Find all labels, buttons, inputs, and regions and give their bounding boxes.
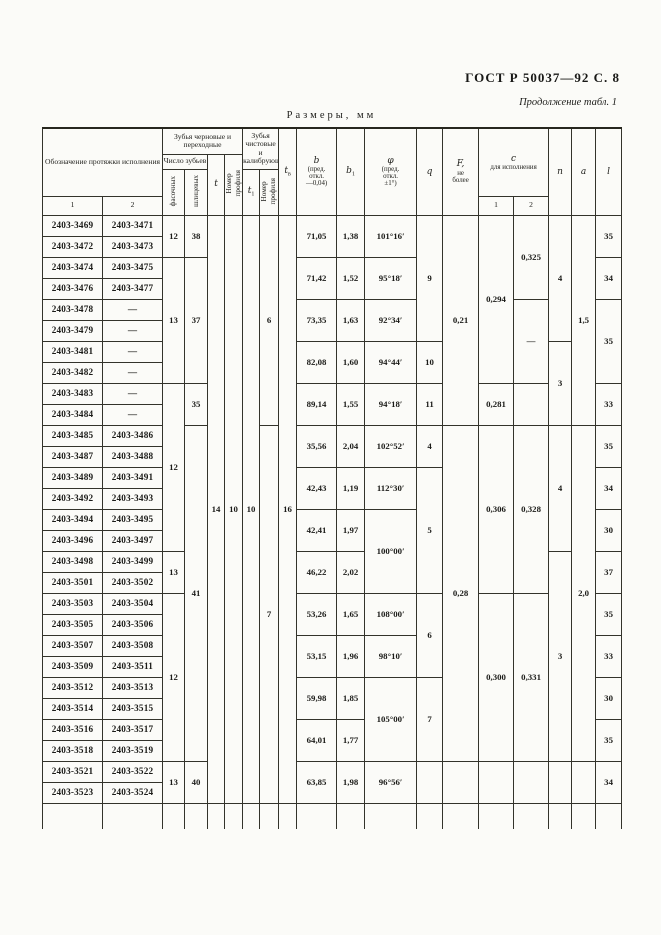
data-cell xyxy=(549,761,572,803)
data-cell: 12 xyxy=(163,593,185,761)
table-header: Обозначение протяжки исполнения Зубья че… xyxy=(43,128,622,215)
designation-cell: 2403-3488 xyxy=(103,446,163,467)
data-cell: 1,52 xyxy=(337,257,365,299)
data-cell: 1,85 xyxy=(337,677,365,719)
data-cell: 40 xyxy=(185,761,208,803)
data-cell: 10 xyxy=(417,341,443,383)
designation-cell: 2403-3489 xyxy=(43,467,103,488)
dimensions-table: Обозначение протяжки исполнения Зубья че… xyxy=(42,127,622,829)
data-cell: 1,77 xyxy=(337,719,365,761)
designation-cell: 2403-3509 xyxy=(43,656,103,677)
header-a-column: a xyxy=(572,128,596,215)
designation-cell: 2403-3494 xyxy=(43,509,103,530)
data-cell: 1,38 xyxy=(337,215,365,257)
designation-1-label: 1 xyxy=(71,200,75,209)
data-cell: 0,21 xyxy=(443,215,479,425)
header-designation-1: 1 xyxy=(43,196,103,215)
designation-cell: 2403-3472 xyxy=(43,236,103,257)
data-cell: 1,55 xyxy=(337,383,365,425)
phi-symbol: φ xyxy=(387,156,393,166)
data-cell: 13 xyxy=(163,551,185,593)
data-cell: 35 xyxy=(596,215,622,257)
data-cell: 3 xyxy=(549,551,572,761)
data-cell: 42,43 xyxy=(297,467,337,509)
data-cell: 35,56 xyxy=(297,425,337,467)
header-designation: Обозначение протяжки исполнения xyxy=(43,128,163,196)
designation-cell: 2403-3503 xyxy=(43,593,103,614)
data-cell: 82,08 xyxy=(297,341,337,383)
data-cell: 42,41 xyxy=(297,509,337,551)
designation-cell: 2403-3481 xyxy=(43,341,103,362)
spline-label: шлицевых xyxy=(192,175,201,207)
header-rough-teeth-group: Зубья черновые и переходные xyxy=(163,128,243,154)
data-cell: 5 xyxy=(417,467,443,593)
data-cell xyxy=(514,761,549,803)
chamfer-label: фасочных xyxy=(169,176,178,206)
designation-cell: 2403-3475 xyxy=(103,257,163,278)
data-cell: 4 xyxy=(549,425,572,551)
data-cell: 7 xyxy=(417,677,443,761)
designation-cell: 2403-3497 xyxy=(103,530,163,551)
header-t-column: t xyxy=(208,154,225,215)
tail-cell xyxy=(337,803,365,829)
data-cell: 4 xyxy=(417,425,443,467)
header-f-column: F,не более xyxy=(443,128,479,215)
profile-no-finish-label: Номер профиля xyxy=(260,178,278,204)
data-cell: 0,28 xyxy=(443,425,479,761)
designation-cell: 2403-3508 xyxy=(103,635,163,656)
designation-cell: 2403-3496 xyxy=(43,530,103,551)
table-body: 2403-34692403-3471123814101061671,051,38… xyxy=(43,215,622,829)
designation-cell: 2403-3512 xyxy=(43,677,103,698)
header-finish-group-label: Зубья чистовые и калибрующие xyxy=(243,131,279,166)
tail-cell xyxy=(297,803,337,829)
header-q-column: q xyxy=(417,128,443,215)
header-b-column: b(пред. откл. —0,04) xyxy=(297,128,337,215)
data-cell: 14 xyxy=(208,215,225,803)
header-teeth-count: Число зубьев xyxy=(163,154,208,169)
tail-cell xyxy=(243,803,260,829)
data-cell: 0,281 xyxy=(479,383,514,425)
data-cell: 94°44′ xyxy=(365,341,417,383)
designation-cell: 2403-3482 xyxy=(43,362,103,383)
data-cell: 10 xyxy=(243,215,260,803)
data-cell xyxy=(572,761,596,803)
designation-cell: 2403-3478 xyxy=(43,299,103,320)
data-cell: 37 xyxy=(185,257,208,383)
table-row: 2403-3483—123589,141,5594°18′110,28133 xyxy=(43,383,622,404)
designation-cell: — xyxy=(103,362,163,383)
designation-cell: — xyxy=(103,404,163,425)
data-cell: 35 xyxy=(596,719,622,761)
data-cell: 2,04 xyxy=(337,425,365,467)
data-cell: 4 xyxy=(549,215,572,341)
header-n-column: n xyxy=(549,128,572,215)
tail-cell xyxy=(43,803,103,829)
l-symbol: l xyxy=(607,167,610,177)
data-cell: 71,05 xyxy=(297,215,337,257)
data-cell: 34 xyxy=(596,257,622,299)
designation-cell: 2403-3506 xyxy=(103,614,163,635)
data-cell: 13 xyxy=(163,257,185,383)
tail-cell xyxy=(163,803,185,829)
designation-cell: 2403-3498 xyxy=(43,551,103,572)
data-cell: 1,98 xyxy=(337,761,365,803)
b-symbol: b xyxy=(314,156,320,166)
designation-cell: 2403-3483 xyxy=(43,383,103,404)
designation-cell: 2403-3505 xyxy=(43,614,103,635)
data-cell: 1,60 xyxy=(337,341,365,383)
designation-cell: 2403-3476 xyxy=(43,278,103,299)
designation-cell: 2403-3492 xyxy=(43,488,103,509)
tail-cell xyxy=(208,803,225,829)
data-cell: 12 xyxy=(163,215,185,257)
dimensions-units-label: Размеры, мм xyxy=(42,110,621,121)
data-cell: 7 xyxy=(260,425,279,803)
data-cell: 33 xyxy=(596,635,622,677)
designation-cell: 2403-3516 xyxy=(43,719,103,740)
table-continuation-label: Продолжение табл. 1 xyxy=(519,97,617,108)
tail-cell xyxy=(549,803,572,829)
designation-cell: 2403-3522 xyxy=(103,761,163,782)
tail-cell xyxy=(365,803,417,829)
data-cell: 96°56′ xyxy=(365,761,417,803)
designation-2-label: 2 xyxy=(131,200,135,209)
table-row: 2403-35212403-3522134063,851,9896°56′34 xyxy=(43,761,622,782)
designation-cell: 2403-3495 xyxy=(103,509,163,530)
designation-cell: 2403-3523 xyxy=(43,782,103,803)
designation-cell: 2403-3485 xyxy=(43,425,103,446)
designation-cell: 2403-3469 xyxy=(43,215,103,236)
data-cell: 46,22 xyxy=(297,551,337,593)
data-cell: 0,331 xyxy=(514,593,549,761)
data-cell: 1,63 xyxy=(337,299,365,341)
b1-subscript: 1 xyxy=(352,171,355,177)
data-cell: 0,328 xyxy=(514,425,549,593)
designation-cell: 2403-3504 xyxy=(103,593,163,614)
data-cell: — xyxy=(514,299,549,383)
header-c-group: сдля исполнения xyxy=(479,128,549,196)
tail-cell xyxy=(572,803,596,829)
data-cell: 1,96 xyxy=(337,635,365,677)
designation-cell: 2403-3474 xyxy=(43,257,103,278)
data-cell xyxy=(479,761,514,803)
designation-cell: 2403-3499 xyxy=(103,551,163,572)
designation-cell: 2403-3484 xyxy=(43,404,103,425)
designation-cell: 2403-3493 xyxy=(103,488,163,509)
data-cell: 30 xyxy=(596,677,622,719)
designation-cell: 2403-3511 xyxy=(103,656,163,677)
tail-cell xyxy=(225,803,243,829)
table-row: 2403-35032403-35041253,261,65108°00′60,3… xyxy=(43,593,622,614)
tail-cell xyxy=(185,803,208,829)
designation-cell: 2403-3491 xyxy=(103,467,163,488)
designation-cell: 2403-3486 xyxy=(103,425,163,446)
header-finish-teeth-group: Зубья чистовые и калибрующие xyxy=(243,128,279,169)
header-c-1: 1 xyxy=(479,196,514,215)
data-cell: 35 xyxy=(596,593,622,635)
data-cell: 34 xyxy=(596,467,622,509)
data-cell: 0,300 xyxy=(479,593,514,761)
tail-cell xyxy=(103,803,163,829)
data-cell: 95°18′ xyxy=(365,257,417,299)
data-cell: 3 xyxy=(549,341,572,425)
header-chamfer-teeth: фасочных xyxy=(163,169,185,215)
header-designation-2: 2 xyxy=(103,196,163,215)
data-cell: 112°30′ xyxy=(365,467,417,509)
data-cell: 10 xyxy=(225,215,243,803)
data-cell: 0,294 xyxy=(479,215,514,383)
data-cell: 59,98 xyxy=(297,677,337,719)
data-cell: 13 xyxy=(163,761,185,803)
designation-cell: — xyxy=(103,383,163,404)
tail-cell xyxy=(596,803,622,829)
designation-cell: 2403-3517 xyxy=(103,719,163,740)
designation-cell: 2403-3515 xyxy=(103,698,163,719)
data-cell: 6 xyxy=(260,215,279,425)
data-cell: 12 xyxy=(163,383,185,551)
designation-cell: 2403-3514 xyxy=(43,698,103,719)
data-cell: 105°00′ xyxy=(365,677,417,761)
data-cell xyxy=(514,383,549,425)
data-cell xyxy=(443,761,479,803)
data-cell: 35 xyxy=(596,299,622,383)
data-cell: 71,42 xyxy=(297,257,337,299)
data-cell: 53,15 xyxy=(297,635,337,677)
a-symbol: a xyxy=(581,167,586,177)
tv-subscript: в xyxy=(288,171,291,177)
data-cell: 33 xyxy=(596,383,622,425)
table-row: 2403-3478—73,351,6392°34′—35 xyxy=(43,299,622,320)
data-cell: 1,97 xyxy=(337,509,365,551)
t-symbol: t xyxy=(214,179,218,189)
data-cell: 2,02 xyxy=(337,551,365,593)
data-cell: 98°10′ xyxy=(365,635,417,677)
header-spline-teeth: шлицевых xyxy=(185,169,208,215)
designation-cell: 2403-3501 xyxy=(43,572,103,593)
data-cell: 100°00′ xyxy=(365,509,417,593)
designation-cell: 2403-3507 xyxy=(43,635,103,656)
data-cell: 11 xyxy=(417,383,443,425)
designation-cell: 2403-3471 xyxy=(103,215,163,236)
scanned-document-page: ГОСТ Р 50037—92 С. 8 Продолжение табл. 1… xyxy=(0,0,661,935)
n-symbol: n xyxy=(557,167,563,177)
data-cell: 101°16′ xyxy=(365,215,417,257)
tail-cell xyxy=(260,803,279,829)
data-cell: 73,35 xyxy=(297,299,337,341)
designation-cell: 2403-3502 xyxy=(103,572,163,593)
table-row: 2403-34852403-348641735,562,04102°52′40,… xyxy=(43,425,622,446)
data-cell: 53,26 xyxy=(297,593,337,635)
header-tv-column: tв xyxy=(279,128,297,215)
data-cell: 16 xyxy=(279,215,297,803)
data-cell xyxy=(417,761,443,803)
designation-cell: 2403-3479 xyxy=(43,320,103,341)
data-cell: 92°34′ xyxy=(365,299,417,341)
header-phi-column: φ(пред. откл. ±1°) xyxy=(365,128,417,215)
data-cell: 34 xyxy=(596,761,622,803)
c-symbol: с xyxy=(511,154,516,164)
c-1-label: 1 xyxy=(494,200,498,209)
t1-subscript: 1 xyxy=(251,191,254,197)
header-designation-label: Обозначение протяжки исполнения xyxy=(45,157,160,166)
tail-cell xyxy=(417,803,443,829)
data-cell: 64,01 xyxy=(297,719,337,761)
designation-cell: 2403-3513 xyxy=(103,677,163,698)
tail-cell xyxy=(443,803,479,829)
data-cell: 35 xyxy=(185,383,208,425)
header-rough-group-label: Зубья черновые и переходные xyxy=(174,132,231,150)
designation-cell: — xyxy=(103,320,163,341)
gost-standard-header: ГОСТ Р 50037—92 С. 8 xyxy=(465,70,620,86)
header-l-column: l xyxy=(596,128,622,215)
data-cell: 94°18′ xyxy=(365,383,417,425)
f-symbol: F, xyxy=(457,159,465,169)
phi-tolerance-note: (пред. откл. ±1°) xyxy=(365,166,416,188)
header-c-2: 2 xyxy=(514,196,549,215)
table-row: 2403-34692403-3471123814101061671,051,38… xyxy=(43,215,622,236)
table-tail-row xyxy=(43,803,622,829)
tail-cell xyxy=(514,803,549,829)
designation-cell: 2403-3519 xyxy=(103,740,163,761)
designation-cell: — xyxy=(103,341,163,362)
header-profile-no-finish: Номер профиля xyxy=(260,169,279,215)
header-t1-column: t1 xyxy=(243,169,260,215)
data-cell: 0,325 xyxy=(514,215,549,299)
data-cell: 102°52′ xyxy=(365,425,417,467)
designation-cell: — xyxy=(103,299,163,320)
f-note: не более xyxy=(443,170,478,185)
data-cell: 6 xyxy=(417,593,443,677)
data-cell: 1,65 xyxy=(337,593,365,635)
teeth-count-label: Число зубьев xyxy=(164,156,207,165)
data-cell: 1,5 xyxy=(572,215,596,425)
data-cell: 63,85 xyxy=(297,761,337,803)
designation-cell: 2403-3473 xyxy=(103,236,163,257)
data-cell: 2,0 xyxy=(572,425,596,761)
q-symbol: q xyxy=(427,167,433,177)
header-profile-no-rough: Номер профиля xyxy=(225,154,243,215)
data-cell: 108°00′ xyxy=(365,593,417,635)
data-cell: 89,14 xyxy=(297,383,337,425)
tail-cell xyxy=(279,803,297,829)
data-cell: 38 xyxy=(185,215,208,257)
data-cell: 35 xyxy=(596,425,622,467)
designation-cell: 2403-3524 xyxy=(103,782,163,803)
designation-cell: 2403-3477 xyxy=(103,278,163,299)
c-note: для исполнения xyxy=(479,164,548,171)
designation-cell: 2403-3521 xyxy=(43,761,103,782)
data-cell: 0,306 xyxy=(479,425,514,593)
header-b1-column: b1 xyxy=(337,128,365,215)
data-cell: 41 xyxy=(185,425,208,761)
data-cell: 30 xyxy=(596,509,622,551)
b-tolerance-note: (пред. откл. —0,04) xyxy=(297,166,336,188)
data-cell: 37 xyxy=(596,551,622,593)
tail-cell xyxy=(479,803,514,829)
c-2-label: 2 xyxy=(529,200,533,209)
profile-no-rough-label: Номер профиля xyxy=(225,170,243,196)
data-cell: 1,19 xyxy=(337,467,365,509)
designation-cell: 2403-3518 xyxy=(43,740,103,761)
designation-cell: 2403-3487 xyxy=(43,446,103,467)
data-cell: 9 xyxy=(417,215,443,341)
